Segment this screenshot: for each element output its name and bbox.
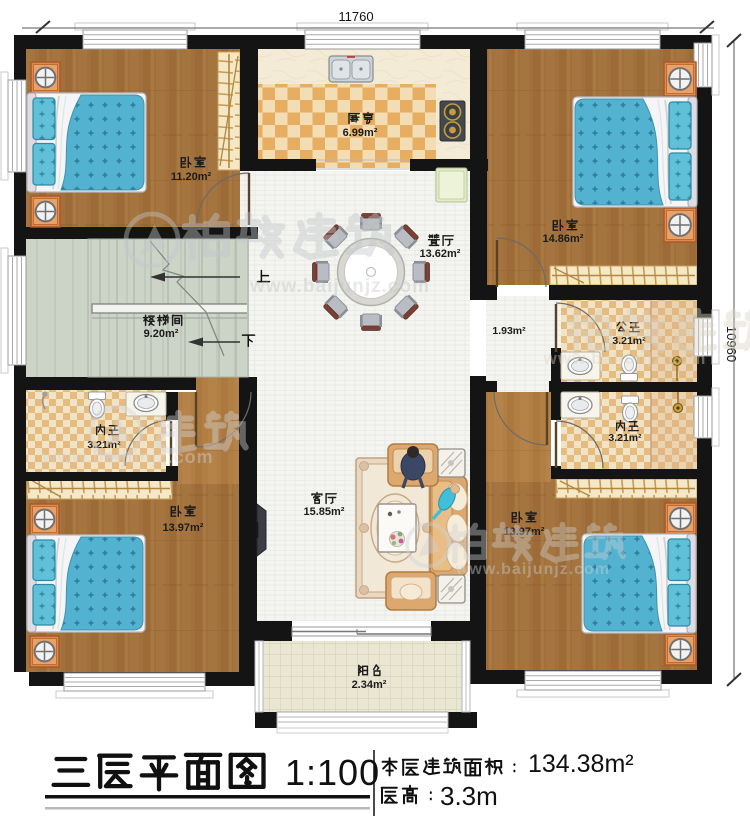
svg-text:www.baijunjz.com: www.baijunjz.com <box>249 276 430 297</box>
svg-text:3.21m²: 3.21m² <box>608 432 642 444</box>
svg-text:13.97m²: 13.97m² <box>163 522 204 534</box>
svg-text:11760: 11760 <box>338 9 373 24</box>
svg-text:www.baijunjz.com: www.baijunjz.com <box>455 561 610 578</box>
svg-text:3.3m: 3.3m <box>440 781 498 811</box>
svg-text:1:100: 1:100 <box>285 752 380 793</box>
svg-text:1.93m²: 1.93m² <box>492 325 526 337</box>
svg-text:15.85m²: 15.85m² <box>304 506 345 518</box>
svg-text:14.86m²: 14.86m² <box>543 233 584 245</box>
svg-text:2.34m²: 2.34m² <box>352 679 387 691</box>
svg-text:13.62m²: 13.62m² <box>420 248 461 260</box>
svg-text:134.38m²: 134.38m² <box>528 750 634 778</box>
svg-text:www.baijunjz.com: www.baijunjz.com <box>41 447 213 467</box>
svg-text:11.20m²: 11.20m² <box>171 171 212 183</box>
svg-text:www.baijunjz.com: www.baijunjz.com <box>543 349 707 368</box>
svg-text:6.99m²: 6.99m² <box>343 127 378 139</box>
svg-text:9.20m²: 9.20m² <box>144 328 179 340</box>
